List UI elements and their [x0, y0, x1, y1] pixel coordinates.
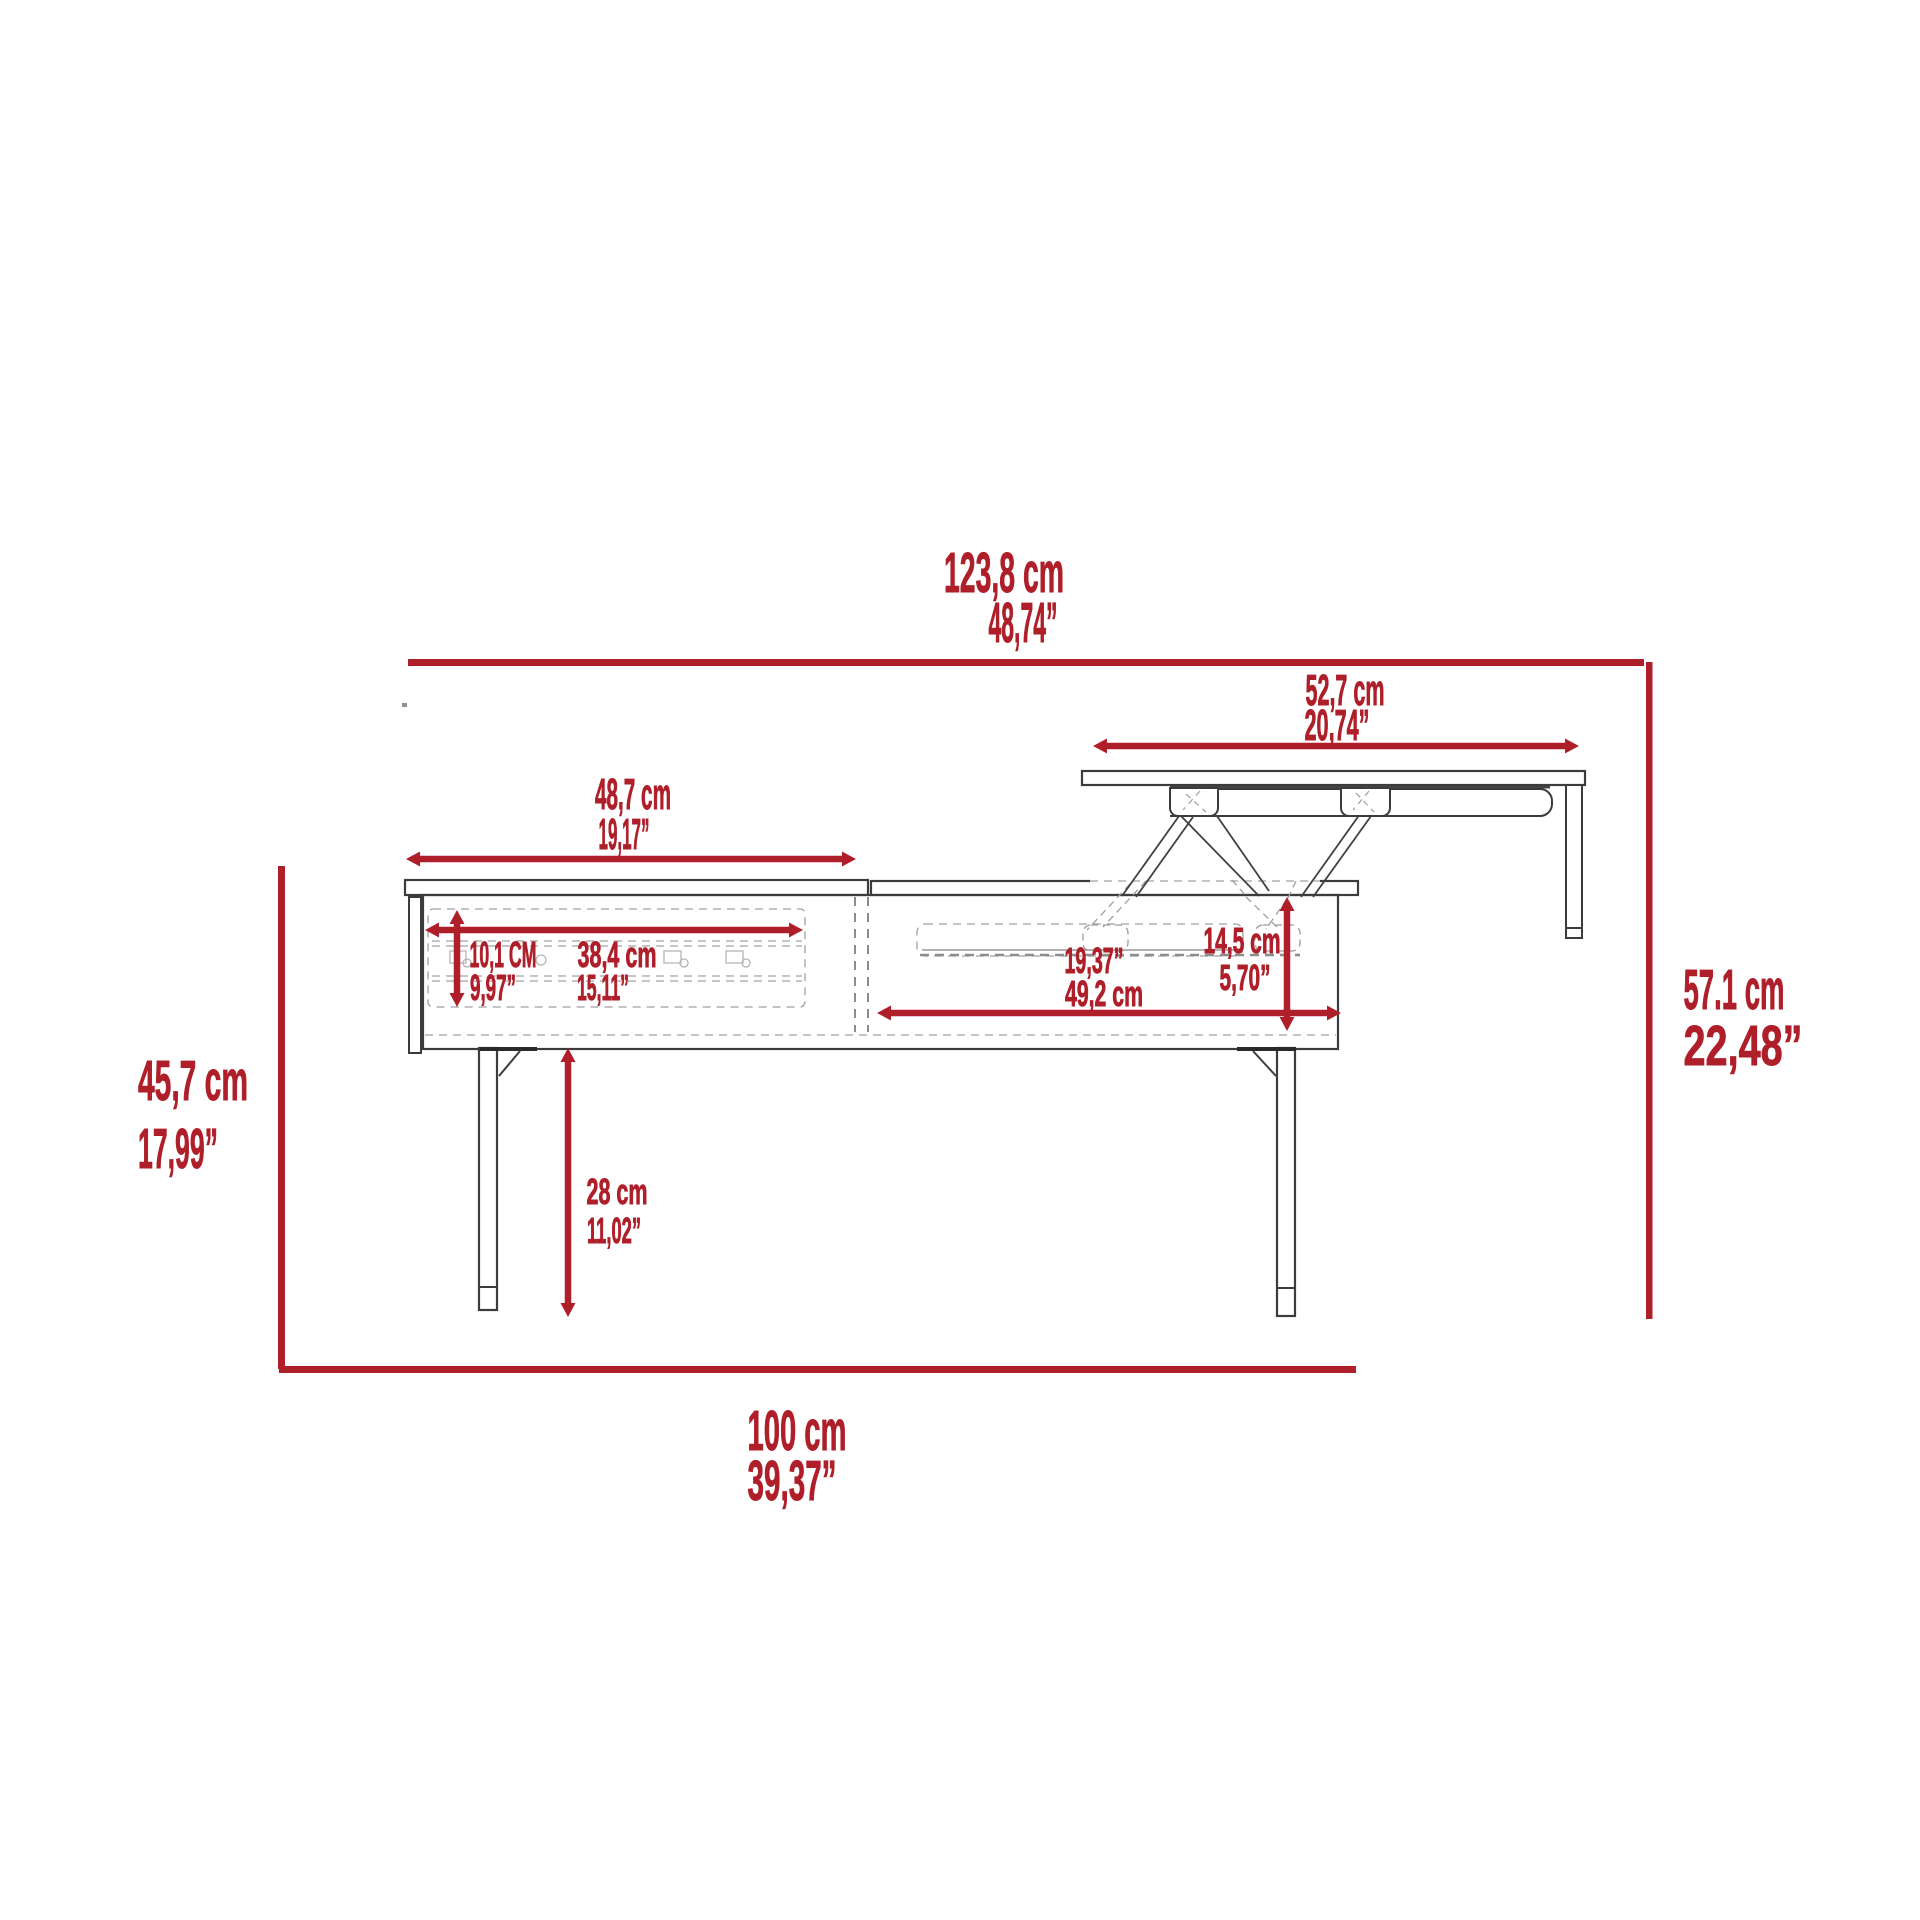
svg-text:39,37”: 39,37”	[748, 1449, 837, 1513]
svg-text:11,02”: 11,02”	[587, 1210, 641, 1251]
svg-text:45,7 cm: 45,7 cm	[138, 1049, 248, 1113]
svg-text:57.1 cm: 57.1 cm	[1684, 958, 1785, 1022]
svg-text:48,74”: 48,74”	[989, 591, 1058, 655]
svg-text:19,17”: 19,17”	[599, 810, 650, 859]
svg-text:15,11”: 15,11”	[577, 967, 629, 1008]
svg-text:49,2 cm: 49,2 cm	[1065, 973, 1143, 1014]
svg-text:20,74”: 20,74”	[1305, 701, 1370, 750]
svg-text:22,48”: 22,48”	[1684, 1014, 1803, 1078]
svg-text:9,97”: 9,97”	[470, 967, 516, 1008]
svg-text:14,5 cm: 14,5 cm	[1204, 920, 1281, 961]
svg-text:5,70”: 5,70”	[1220, 957, 1271, 998]
svg-text:17,99”: 17,99”	[138, 1117, 218, 1181]
svg-text:28 cm: 28 cm	[587, 1171, 648, 1212]
